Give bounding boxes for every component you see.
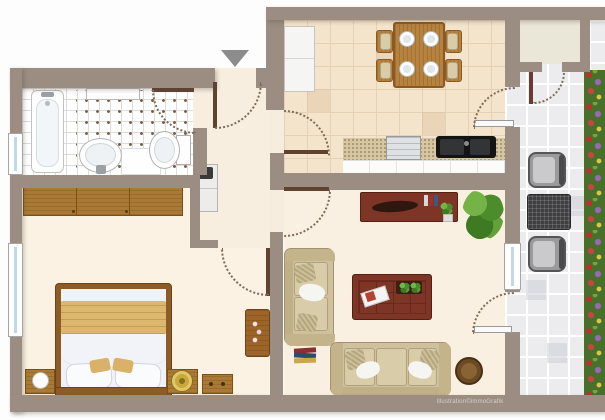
wall [10,68,22,412]
decor-flowers-icon [251,320,263,346]
bathroom-shelf [86,88,140,100]
wall [266,7,605,20]
patio-chair-back [559,239,564,269]
flower-boxes [584,70,605,395]
wall [10,395,605,412]
drawer-chest [202,374,233,394]
loveseat-armrest [285,249,335,261]
place-setting [399,31,415,47]
kitchen-door-threshold [270,110,284,153]
wardrobe-handle [72,210,75,213]
books [424,195,428,206]
patio-chair-seat [533,241,555,267]
patio-chair-back [559,155,564,185]
loveseat-backrest [285,249,293,346]
living-room-window-glass [511,247,514,286]
basin-faucet-icon [96,165,106,174]
wall [193,128,207,175]
sofa-armrest [439,343,451,396]
patio-chair-seat [533,157,555,183]
wall [266,7,284,110]
bedside-lamp-icon [171,370,193,392]
tray-plant [399,282,410,293]
chair-cushion [380,33,391,50]
sink-basin [440,139,464,155]
dining-table [393,22,445,88]
kitchen-tile-accent [422,112,445,135]
bathroom-window-glass [14,137,17,171]
patio-table [527,194,571,230]
books [434,195,438,206]
tray-plant [410,282,421,293]
chest-handle [221,382,225,386]
bed-blanket [61,301,166,334]
sink-basin [470,139,490,155]
wall [190,188,200,240]
wall [520,62,542,72]
refrigerator [284,26,315,92]
kitchen-tile-accent [307,89,330,112]
balcony-tile-accent [547,343,567,363]
balcony-tile-accent [526,280,546,300]
bedroom-window-glass [14,247,17,333]
wall [505,20,520,87]
place-setting [423,61,439,77]
floor-books [294,358,316,364]
place-setting [399,61,415,77]
plant-pot [443,214,453,222]
wash-basin-bowl [85,143,116,167]
place-setting [423,31,439,47]
sofa-armrest [331,343,343,396]
wall [270,232,283,395]
books [429,195,433,206]
round-side-table-top [461,363,477,379]
houseplant [462,188,504,240]
toilet-seat [154,137,175,163]
chair-cushion [447,33,458,50]
wall [190,240,218,248]
wall [22,175,200,188]
loveseat-armrest [285,334,335,346]
entrance-arrow-icon [221,50,249,67]
storage-niche-floor [520,20,584,64]
wall [10,68,215,88]
wardrobe-handle [125,210,128,213]
living-door-threshold [270,190,284,232]
bedside-lamp-icon [32,372,49,389]
refrigerator-seam [285,58,314,59]
floor-plan: Illustration©immoGrafik [0,0,605,420]
throw-pillow [296,312,319,332]
wall [270,153,284,190]
bathtub-basin [36,99,59,167]
chest-handle [209,382,213,386]
chair-cushion [447,62,458,79]
wardrobe [23,186,183,216]
seat-cushion [376,348,407,386]
wardrobe-seam [76,187,77,215]
wardrobe-seam [129,187,130,215]
stove [386,136,421,160]
wall [505,332,520,395]
chair-cushion [380,62,391,79]
bathtub-faucet-icon [41,92,54,97]
kitchen-cabinet-front [343,160,505,174]
bathtub-drain-icon [45,101,50,106]
watermark: Illustration©immoGrafik [425,398,515,406]
wall [580,20,590,72]
sink-faucet-icon [464,141,469,146]
